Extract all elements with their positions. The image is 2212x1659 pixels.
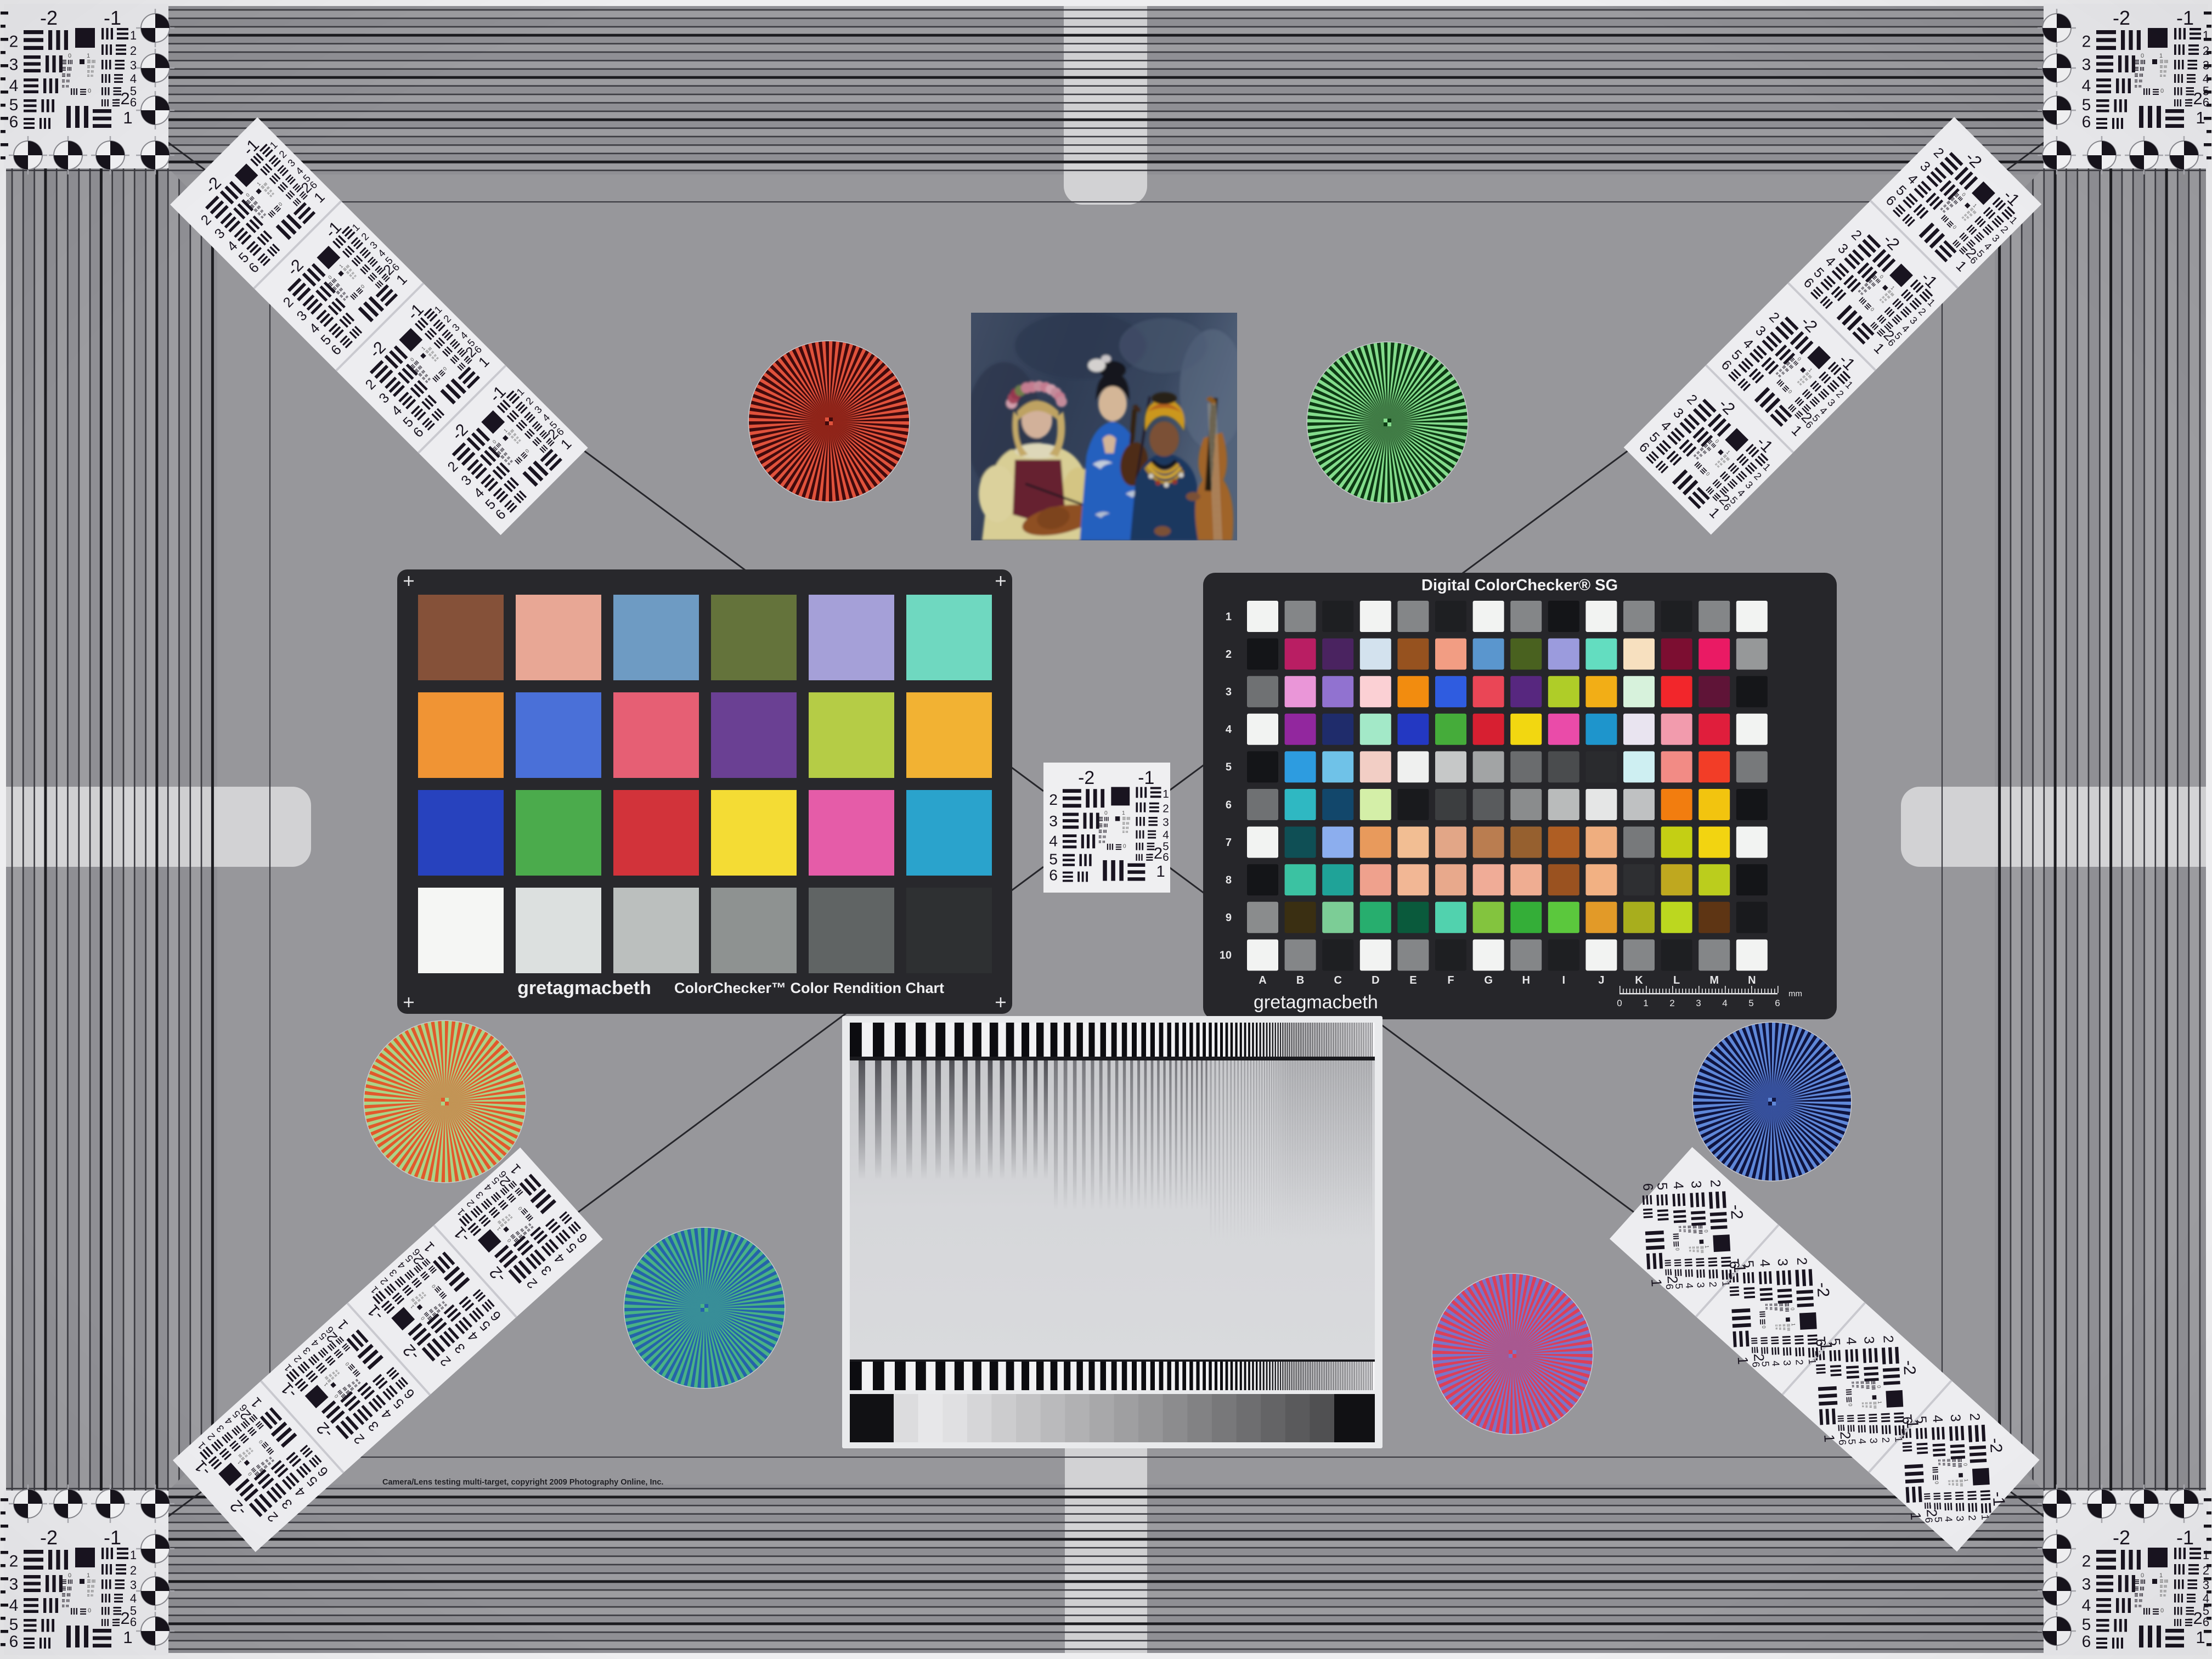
- svg-text:Camera/Lens testing multi-targ: Camera/Lens testing multi-target, copyri…: [382, 1478, 663, 1487]
